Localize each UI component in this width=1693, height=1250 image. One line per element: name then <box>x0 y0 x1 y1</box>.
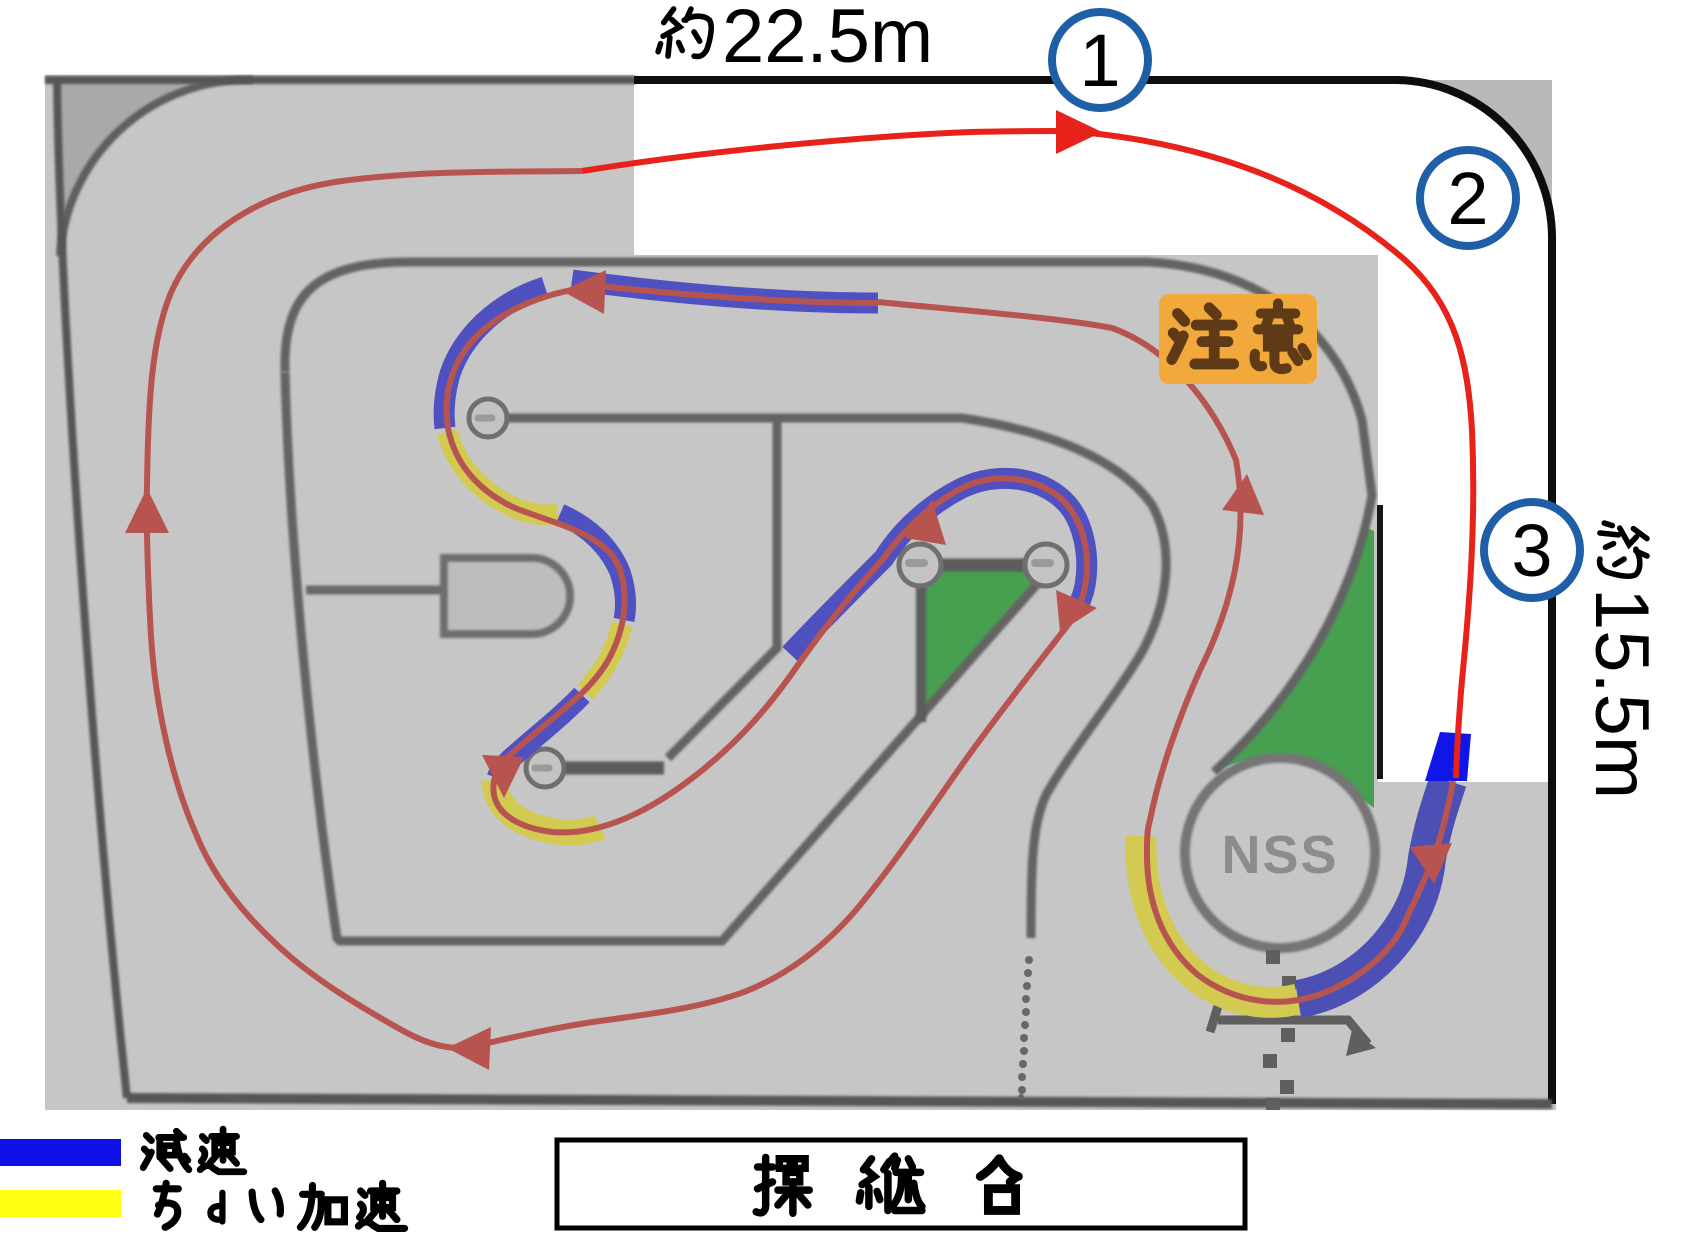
svg-text:2: 2 <box>1447 157 1488 240</box>
svg-text:22.5m: 22.5m <box>722 0 933 79</box>
svg-text:15.5m: 15.5m <box>1579 588 1664 799</box>
svg-text:3: 3 <box>1511 509 1552 592</box>
svg-text:1: 1 <box>1079 19 1120 102</box>
svg-text:NSS: NSS <box>1221 825 1338 885</box>
